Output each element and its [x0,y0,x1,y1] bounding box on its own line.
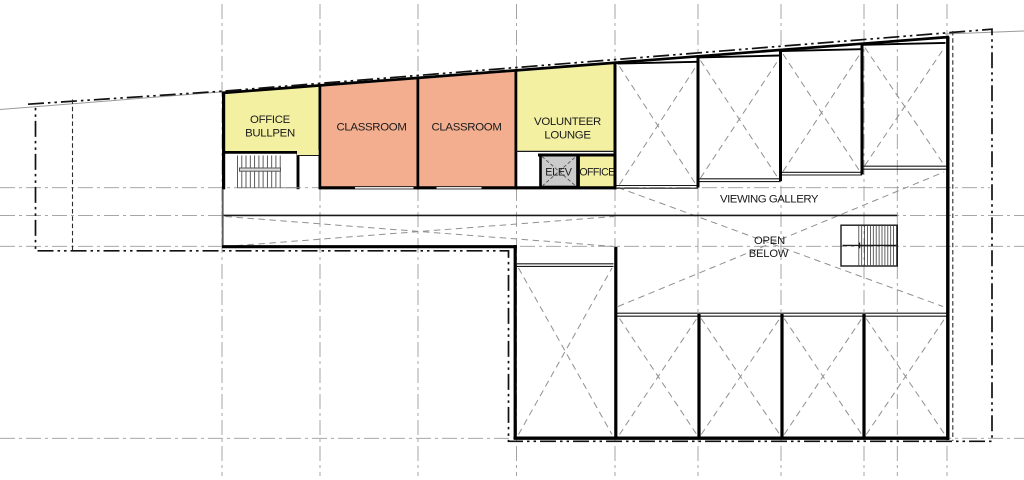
svg-text:CLASSROOM: CLASSROOM [336,121,406,133]
svg-text:OPEN: OPEN [754,235,785,247]
svg-text:OFFICE: OFFICE [250,114,291,126]
svg-text:ELEV: ELEV [545,167,573,179]
svg-text:VOLUNTEER: VOLUNTEER [534,116,601,128]
svg-text:BULLPEN: BULLPEN [245,128,295,140]
svg-text:CLASSROOM: CLASSROOM [431,121,501,133]
svg-text:LOUNGE: LOUNGE [544,130,591,142]
svg-text:OFFICE: OFFICE [579,167,615,179]
svg-text:BELOW: BELOW [749,248,789,260]
svg-text:VIEWING GALLERY: VIEWING GALLERY [720,194,819,206]
